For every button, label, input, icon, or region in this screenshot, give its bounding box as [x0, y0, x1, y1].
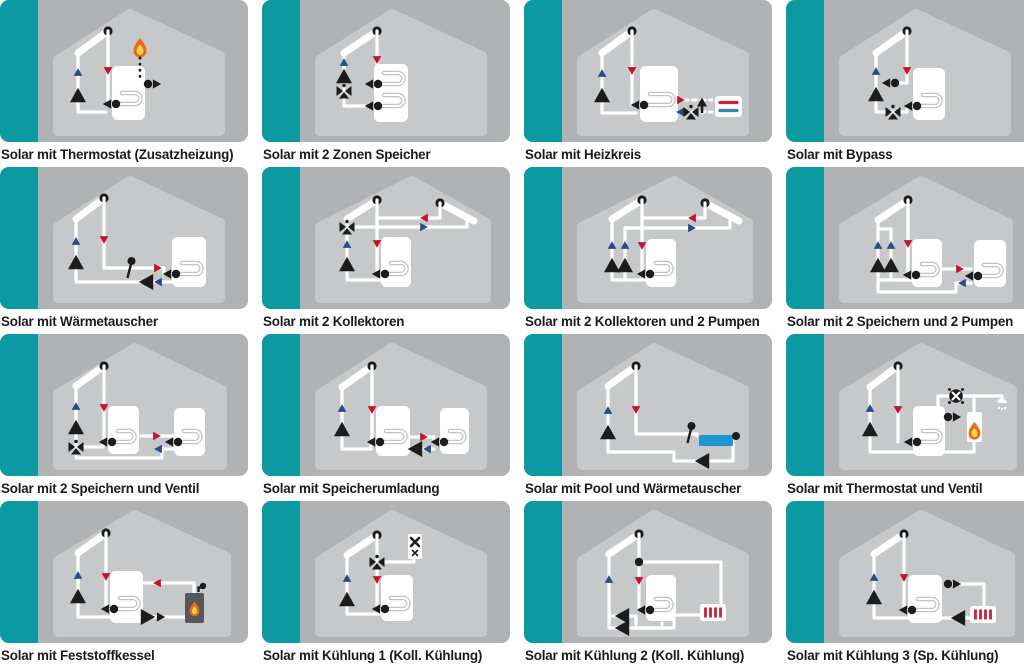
tile-solar-kuehlung-2: Solar mit Kühlung 2 (Koll. Kühlung) [524, 501, 772, 668]
diagram-caption: Solar mit 2 Kollektoren [263, 314, 510, 329]
diagram-solar-kuehlung-3 [786, 501, 1024, 643]
tile-solar-heizkreis: Solar mit Heizkreis [524, 0, 772, 167]
diagram-solar-heizkreis [524, 0, 772, 142]
tile-solar-thermostat-ventil: Solar mit Thermostat und Ventil [786, 334, 1024, 501]
diagram-caption: Solar mit Thermostat und Ventil [787, 481, 1024, 496]
diagram-solar-2-speichern-ventil [0, 334, 248, 476]
tile-solar-2-zonen-speicher: Solar mit 2 Zonen Speicher [262, 0, 510, 167]
tile-solar-2-speichern-2-pumpen: Solar mit 2 Speichern und 2 Pumpen [786, 167, 1024, 334]
diagram-solar-feststoffkessel [0, 501, 248, 643]
tile-solar-feststoffkessel: Solar mit Feststoffkessel [0, 501, 248, 668]
diagram-solar-thermostat-ventil [786, 334, 1024, 476]
diagram-caption: Solar mit Feststoffkessel [1, 648, 248, 663]
diagram-caption: Solar mit 2 Zonen Speicher [263, 147, 510, 162]
tile-solar-thermostat-zusatzheizung: Solar mit Thermostat (Zusatzheizung) [0, 0, 248, 167]
diagram-caption: Solar mit Pool und Wärmetauscher [525, 481, 772, 496]
diagram-solar-2-kollektoren [262, 167, 510, 309]
diagram-caption: Solar mit Kühlung 1 (Koll. Kühlung) [263, 648, 510, 663]
tile-solar-2-kollektoren: Solar mit 2 Kollektoren [262, 167, 510, 334]
diagram-caption: Solar mit 2 Speichern und Ventil [1, 481, 248, 496]
diagram-caption: Solar mit Heizkreis [525, 147, 772, 162]
diagram-solar-waermetauscher [0, 167, 248, 309]
diagram-solar-thermostat-zusatzheizung [0, 0, 248, 142]
tile-solar-2-kollektoren-2-pumpen: Solar mit 2 Kollektoren und 2 Pumpen [524, 167, 772, 334]
diagram-caption: Solar mit Thermostat (Zusatzheizung) [1, 147, 248, 162]
diagram-caption: Solar mit 2 Kollektoren und 2 Pumpen [525, 314, 772, 329]
diagram-caption: Solar mit Kühlung 3 (Sp. Kühlung) [787, 648, 1024, 663]
tile-solar-kuehlung-1: Solar mit Kühlung 1 (Koll. Kühlung) [262, 501, 510, 668]
diagram-solar-2-zonen-speicher [262, 0, 510, 142]
tile-solar-waermetauscher: Solar mit Wärmetauscher [0, 167, 248, 334]
diagram-caption: Solar mit Bypass [787, 147, 1024, 162]
diagram-solar-pool-waermetauscher [524, 334, 772, 476]
tile-solar-bypass: Solar mit Bypass [786, 0, 1024, 167]
tile-solar-kuehlung-3: Solar mit Kühlung 3 (Sp. Kühlung) [786, 501, 1024, 668]
tile-solar-speicherumladung: Solar mit Speicherumladung [262, 334, 510, 501]
diagram-caption: Solar mit Wärmetauscher [1, 314, 248, 329]
diagram-solar-2-kollektoren-2-pumpen [524, 167, 772, 309]
diagram-solar-speicherumladung [262, 334, 510, 476]
diagram-caption: Solar mit Kühlung 2 (Koll. Kühlung) [525, 648, 772, 663]
diagram-solar-bypass [786, 0, 1024, 142]
diagram-caption: Solar mit Speicherumladung [263, 481, 510, 496]
diagram-solar-kuehlung-1 [262, 501, 510, 643]
tile-solar-pool-waermetauscher: Solar mit Pool und Wärmetauscher [524, 334, 772, 501]
diagram-solar-kuehlung-2 [524, 501, 772, 643]
tile-solar-2-speichern-ventil: Solar mit 2 Speichern und Ventil [0, 334, 248, 501]
diagram-caption: Solar mit 2 Speichern und 2 Pumpen [787, 314, 1024, 329]
tiles-grid: Solar mit Thermostat (Zusatzheizung) Sol… [0, 0, 1024, 668]
diagram-solar-2-speichern-2-pumpen [786, 167, 1024, 309]
